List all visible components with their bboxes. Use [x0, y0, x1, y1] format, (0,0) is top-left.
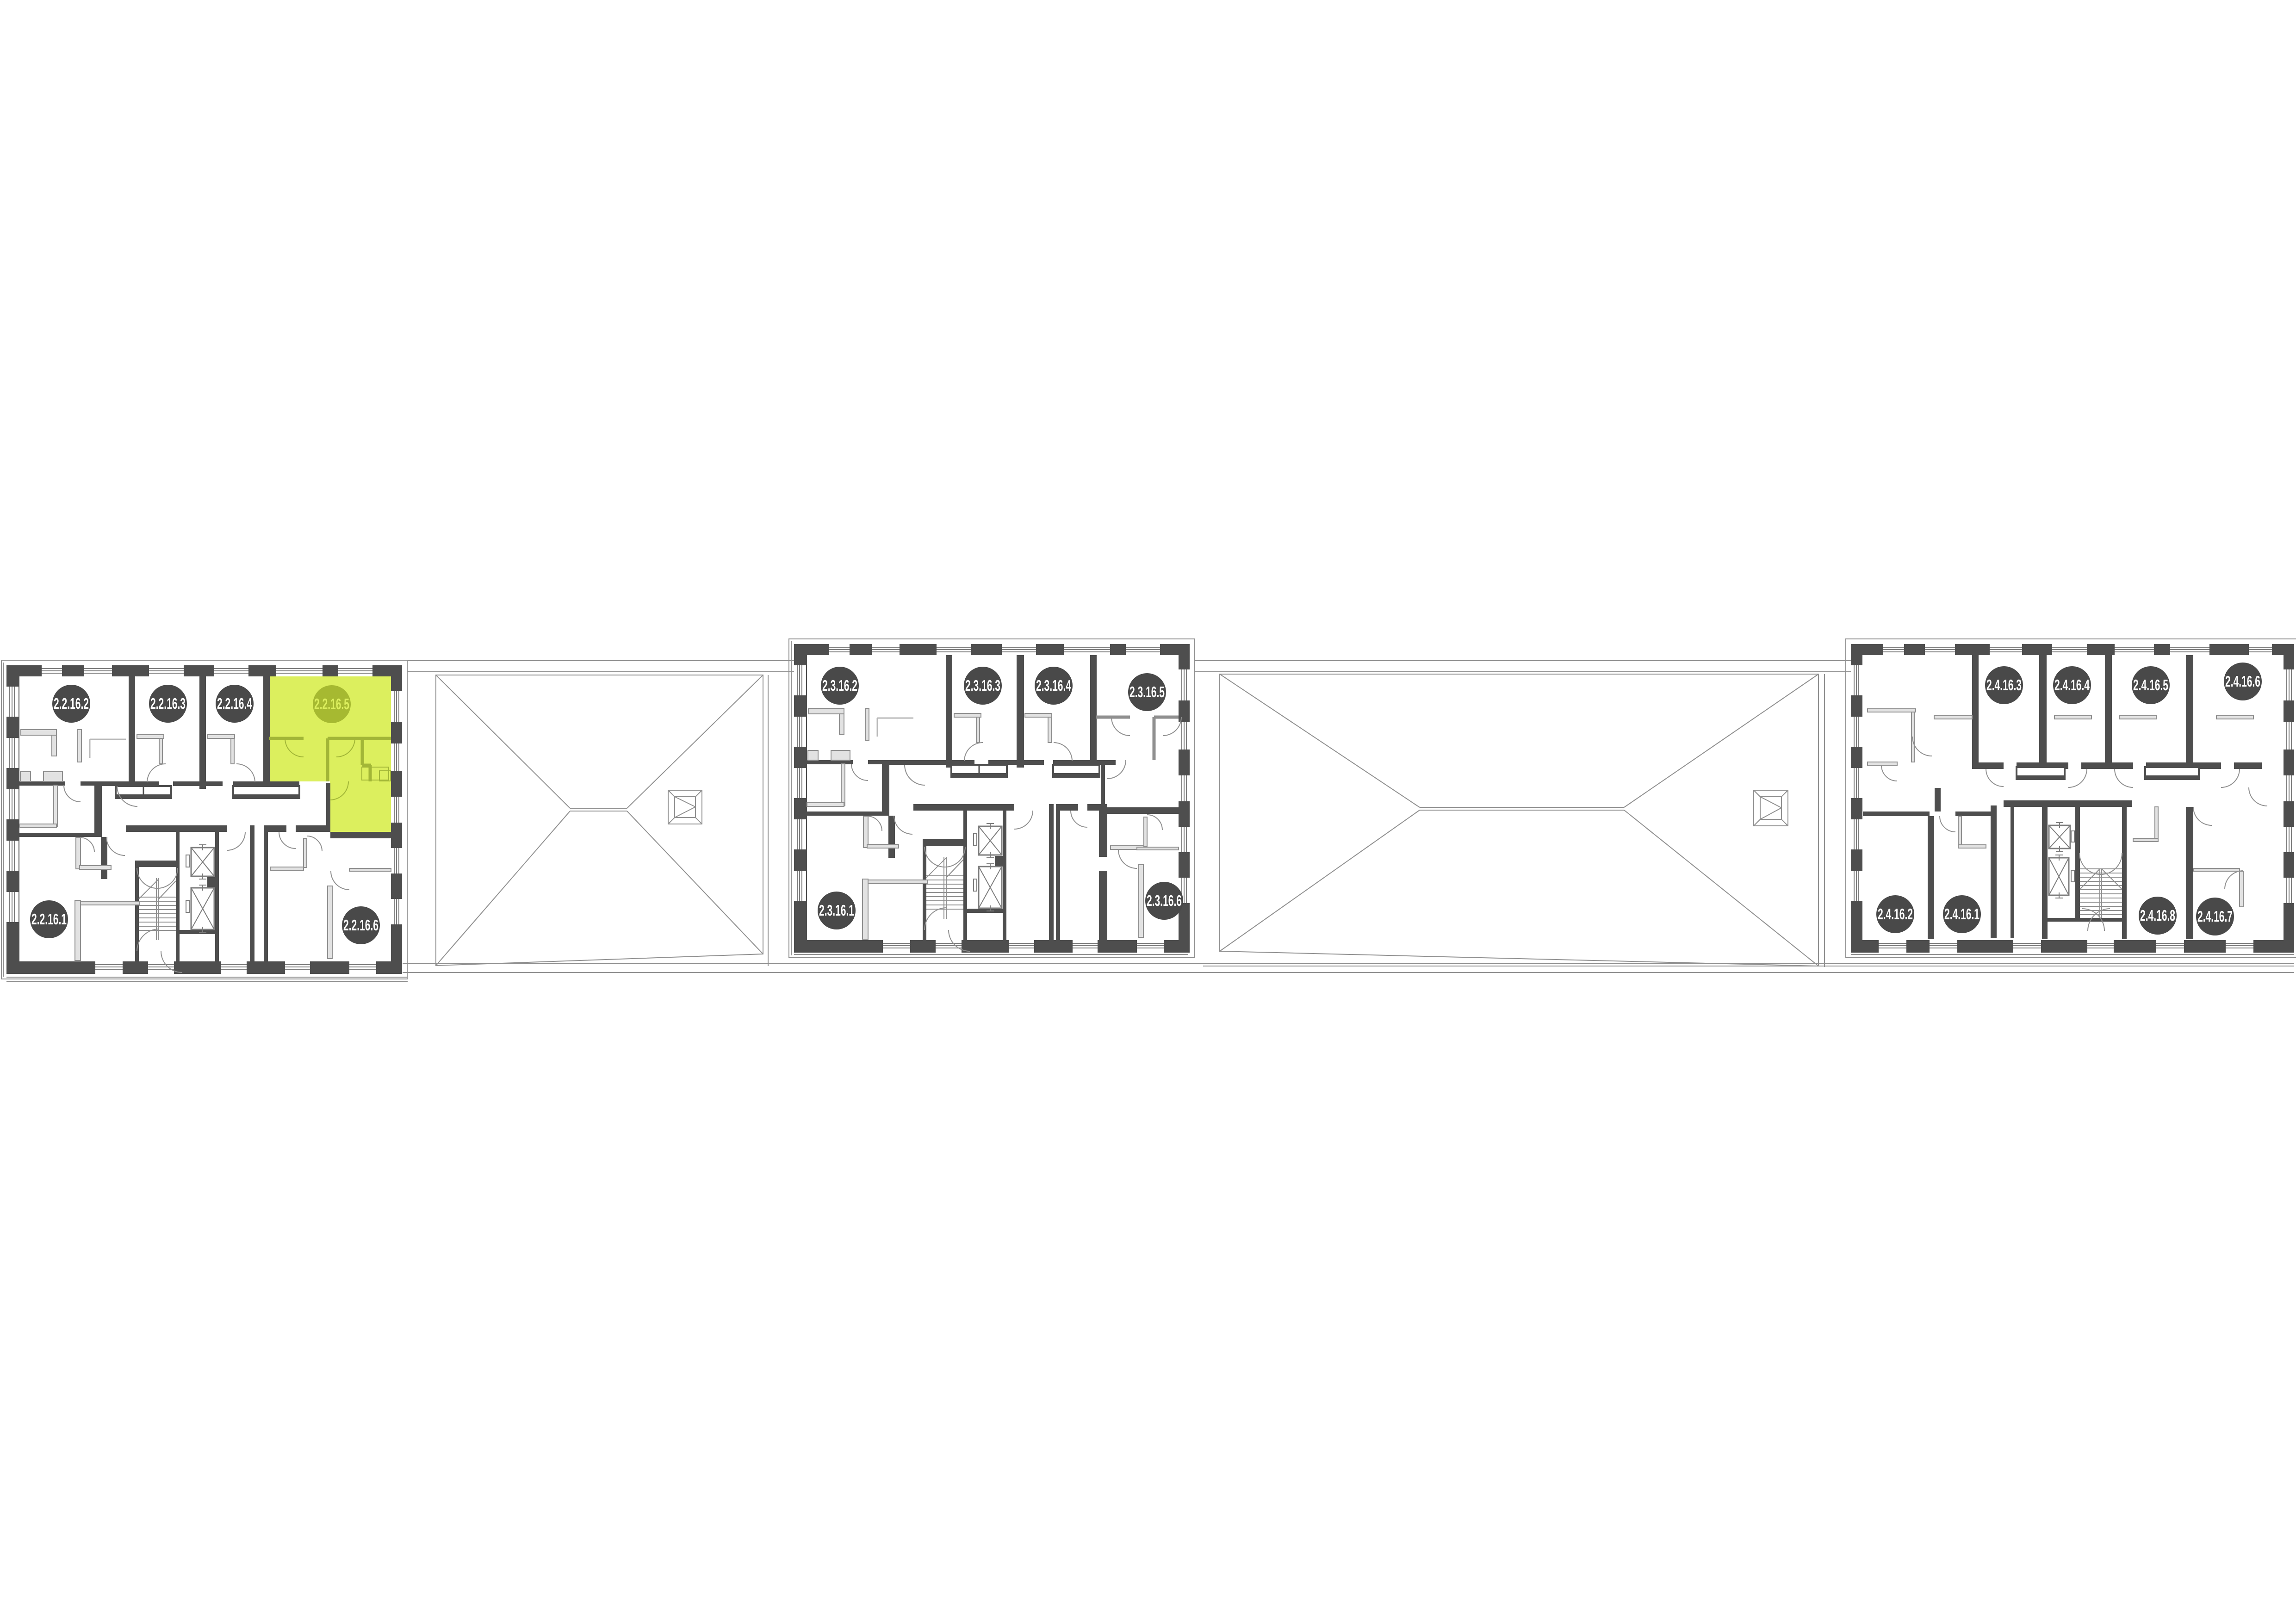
svg-text:2.2.16.2: 2.2.16.2	[54, 695, 89, 712]
svg-text:2.4.16.7: 2.4.16.7	[2197, 908, 2233, 925]
svg-text:2.3.16.4: 2.3.16.4	[1036, 677, 1071, 694]
svg-text:2.2.16.5: 2.2.16.5	[314, 695, 349, 712]
svg-text:2.4.16.2: 2.4.16.2	[1878, 905, 1913, 923]
svg-text:2.2.16.3: 2.2.16.3	[150, 695, 186, 712]
svg-text:2.4.16.3: 2.4.16.3	[1986, 676, 2022, 694]
svg-text:2.4.16.6: 2.4.16.6	[2225, 673, 2260, 690]
svg-text:2.2.16.4: 2.2.16.4	[217, 695, 252, 712]
svg-text:2.3.16.5: 2.3.16.5	[1129, 683, 1165, 700]
svg-text:2.4.16.8: 2.4.16.8	[2140, 907, 2175, 924]
svg-text:2.3.16.6: 2.3.16.6	[1147, 892, 1182, 909]
svg-text:2.2.16.1: 2.2.16.1	[31, 911, 67, 928]
svg-text:2.4.16.4: 2.4.16.4	[2054, 676, 2090, 694]
svg-text:2.4.16.1: 2.4.16.1	[1944, 905, 1980, 923]
svg-text:2.3.16.1: 2.3.16.1	[819, 902, 854, 919]
svg-text:2.3.16.2: 2.3.16.2	[822, 677, 857, 694]
svg-text:2.4.16.5: 2.4.16.5	[2133, 676, 2168, 694]
svg-text:2.2.16.6: 2.2.16.6	[343, 917, 379, 934]
svg-text:2.3.16.3: 2.3.16.3	[965, 677, 1000, 694]
